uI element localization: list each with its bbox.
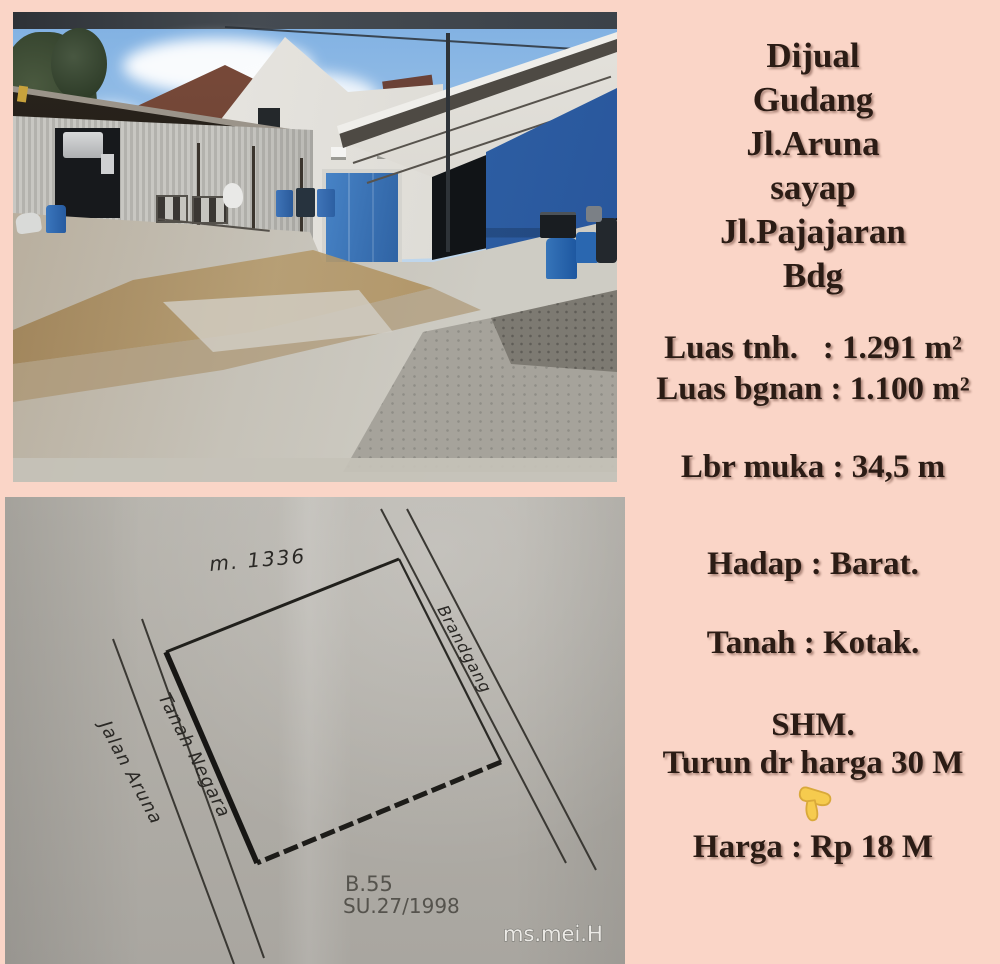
gray-drum <box>586 206 602 222</box>
pointing-down-hand-icon <box>791 783 835 823</box>
wall-vent <box>331 147 346 160</box>
foreground-concrete <box>13 458 617 482</box>
survey-number-label: m. 1336 <box>208 544 307 576</box>
dark-bin <box>296 188 315 217</box>
right-road-label: Brandgang <box>433 602 495 696</box>
machinery <box>63 132 103 158</box>
tanah-negara-label: Tanah Negara <box>154 690 235 822</box>
tree-foliage <box>51 28 107 100</box>
white-pot <box>15 211 43 234</box>
land-plot-sketch: m. 1336 Brandgang Tanah Negara Jalan Aru… <box>5 497 625 964</box>
facing-line: Hadap : Barat. <box>626 543 1000 585</box>
listing-title-line-5: Jl.Pajajaran <box>626 210 1000 254</box>
listing-details: Dijual Gudang Jl.Aruna sayap Jl.Pajajara… <box>626 0 1000 964</box>
plot-drawing: m. 1336 Brandgang Tanah Negara Jalan Aru… <box>5 497 625 964</box>
listing-title-line-4: sayap <box>626 166 1000 210</box>
blue-drum <box>546 238 577 279</box>
frontage-line: Lbr muka : 34,5 m <box>626 446 1000 488</box>
listing-title-line-2: Gudang <box>626 78 1000 122</box>
land-shape-line: Tanah : Kotak. <box>626 622 1000 664</box>
warehouse-photo <box>13 12 617 482</box>
plot-top-edge <box>166 559 399 652</box>
blue-bin <box>276 190 293 217</box>
machinery <box>101 154 114 174</box>
pointer-row <box>626 782 1000 824</box>
dark-drum <box>596 218 617 263</box>
listing-title-line-6: Bdg <box>626 254 1000 298</box>
building-area-line: Luas bgnan : 1.100 m² <box>626 369 1000 410</box>
listing-title-line-1: Dijual <box>626 34 1000 78</box>
jalan-aruna-label: Jalan Aruna <box>93 715 166 828</box>
worker <box>223 183 243 208</box>
blue-bin <box>317 189 335 217</box>
block-number-label: B.55 <box>345 872 393 896</box>
watermark: ms.mei.H <box>503 922 603 946</box>
survey-doc-label: SU.27/1998 <box>343 894 460 918</box>
listing-title-line-3: Jl.Aruna <box>626 122 1000 166</box>
support-pole <box>446 33 450 252</box>
price-line: Harga : Rp 18 M <box>626 826 1000 868</box>
dark-table <box>540 212 576 238</box>
blue-drum <box>576 232 598 263</box>
center-blue-roller-door <box>326 173 398 265</box>
certificate-line: SHM. <box>626 706 1000 744</box>
plot-left-edge <box>166 652 257 863</box>
canopy-pole <box>252 146 255 234</box>
land-area-line: Luas tnh. : 1.291 m² <box>626 328 1000 369</box>
blue-drum <box>46 205 66 233</box>
plot-bottom-edge <box>257 762 501 863</box>
discount-line: Turun dr harga 30 M <box>626 744 1000 782</box>
right-road-outer-line <box>407 509 596 870</box>
